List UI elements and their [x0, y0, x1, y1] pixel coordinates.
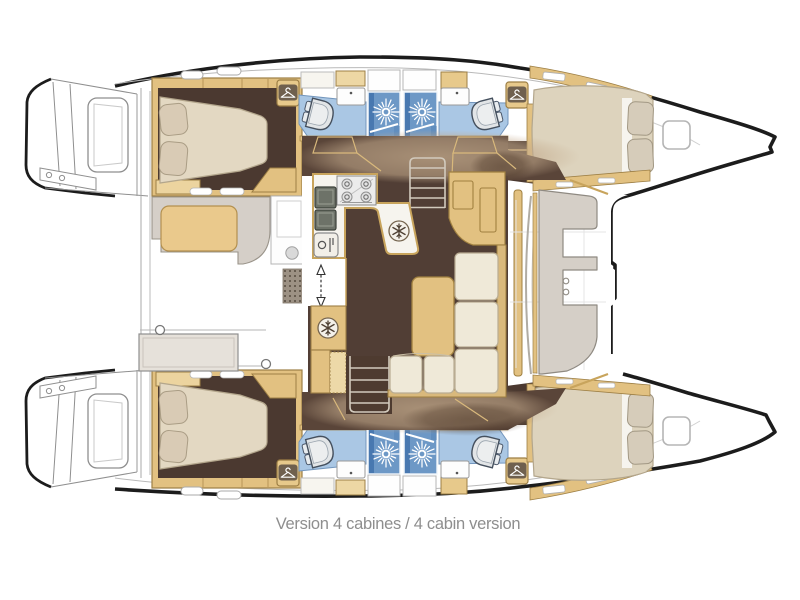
- svg-text:Version 4 cabines / 4 cabin ve: Version 4 cabines / 4 cabin version: [276, 515, 521, 533]
